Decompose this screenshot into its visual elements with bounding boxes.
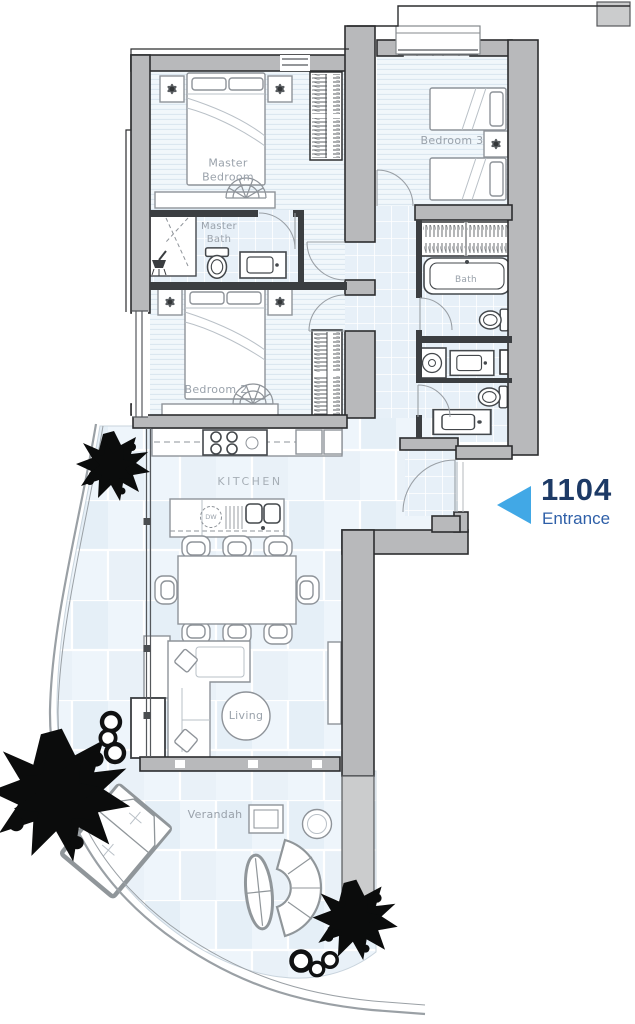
label-living: Living: [229, 709, 264, 723]
tv-console: [328, 642, 341, 724]
bidet: [480, 309, 509, 331]
floor-plan: Master Bedroom Master Bath Bedroom 2 Bed…: [0, 0, 635, 1024]
bench: [155, 192, 275, 208]
dining-table: [178, 556, 296, 624]
label-bedroom-2: Bedroom 2: [185, 383, 248, 397]
unit-number: 1104: [541, 472, 612, 508]
label-master-bath: Master Bath: [193, 220, 245, 246]
round-stool: [303, 810, 332, 839]
sliding-door: [140, 757, 340, 771]
toilet: [206, 248, 229, 278]
label-bath: Bath: [455, 275, 477, 287]
vanity: [433, 410, 491, 435]
planter-pot-icon: [102, 713, 120, 731]
label-bedroom-3: Bedroom 3: [421, 134, 484, 148]
label-master-bedroom: Master Bedroom: [191, 157, 265, 186]
entrance-arrow-icon: [497, 486, 531, 524]
toilet: [479, 386, 508, 408]
label-verandah: Verandah: [188, 808, 243, 822]
entrance-label: Entrance: [542, 509, 610, 529]
balcony: [396, 26, 480, 55]
planter-pot-icon: [292, 952, 311, 971]
sink: [246, 504, 262, 523]
floor-plan-drawing: [0, 0, 635, 1024]
vanity: [450, 351, 494, 376]
label-kitchen: KITCHEN: [217, 475, 282, 489]
planter-pot-icon: [310, 962, 324, 976]
sink: [264, 504, 280, 523]
planter-pot-icon: [323, 953, 337, 967]
planter-box: [131, 698, 165, 758]
planter-pot-icon: [106, 744, 124, 762]
label-dishwasher: DW: [205, 513, 216, 521]
vanity: [240, 252, 286, 278]
